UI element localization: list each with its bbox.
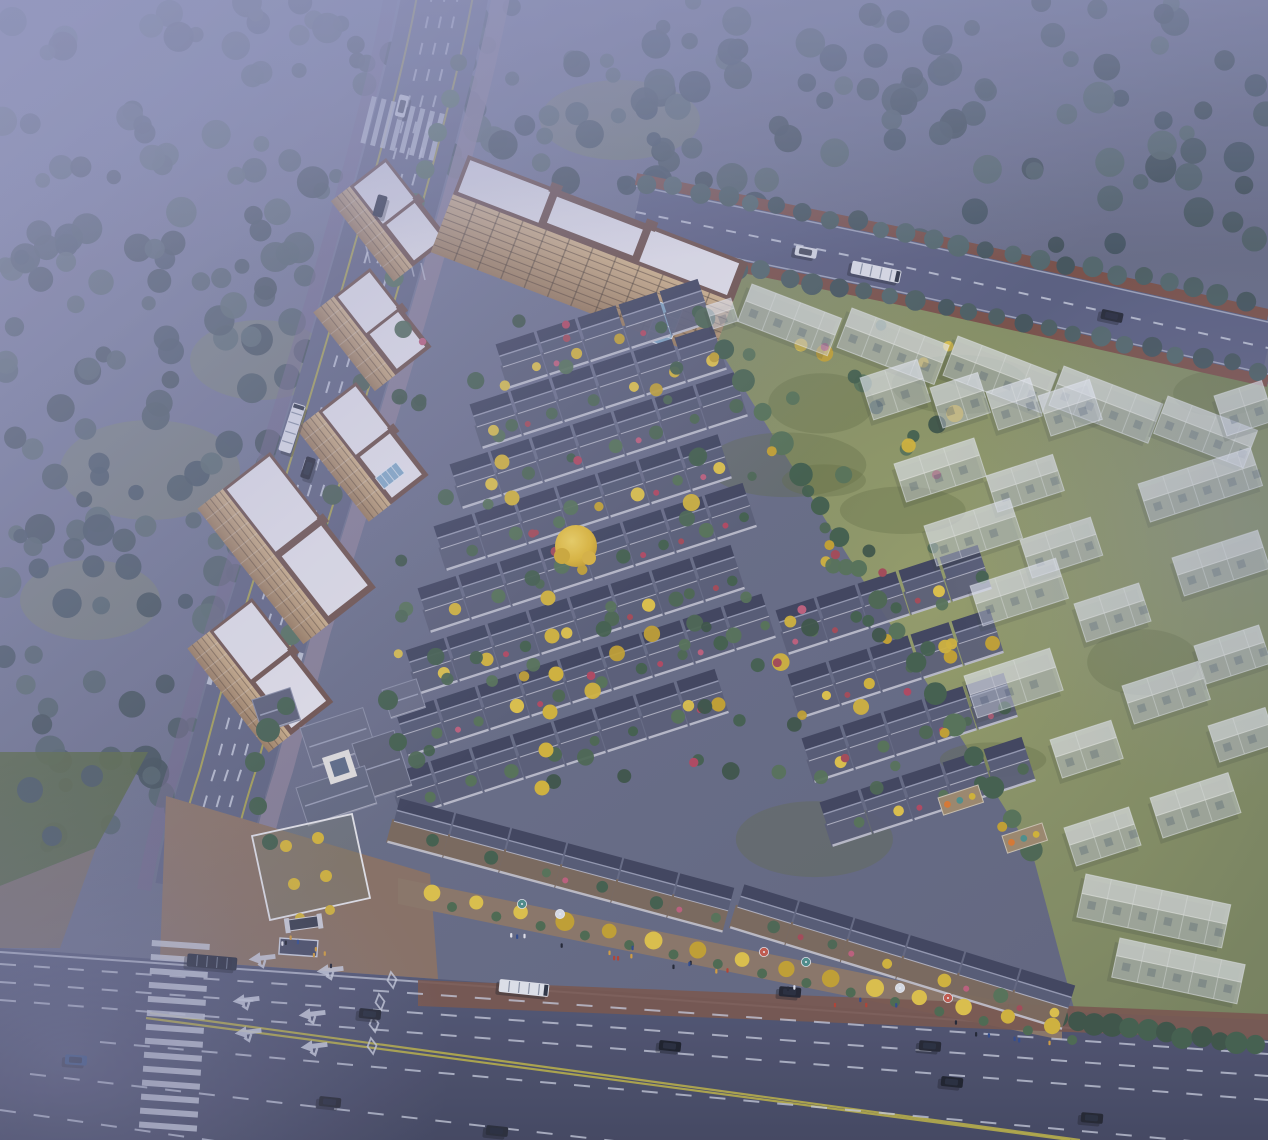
- evening-tint: [0, 0, 1268, 1140]
- aerial-masterplan-rendering: [0, 0, 1268, 1140]
- rendering-canvas: [0, 0, 1268, 1140]
- fog-overlay-layer: [0, 0, 1268, 1140]
